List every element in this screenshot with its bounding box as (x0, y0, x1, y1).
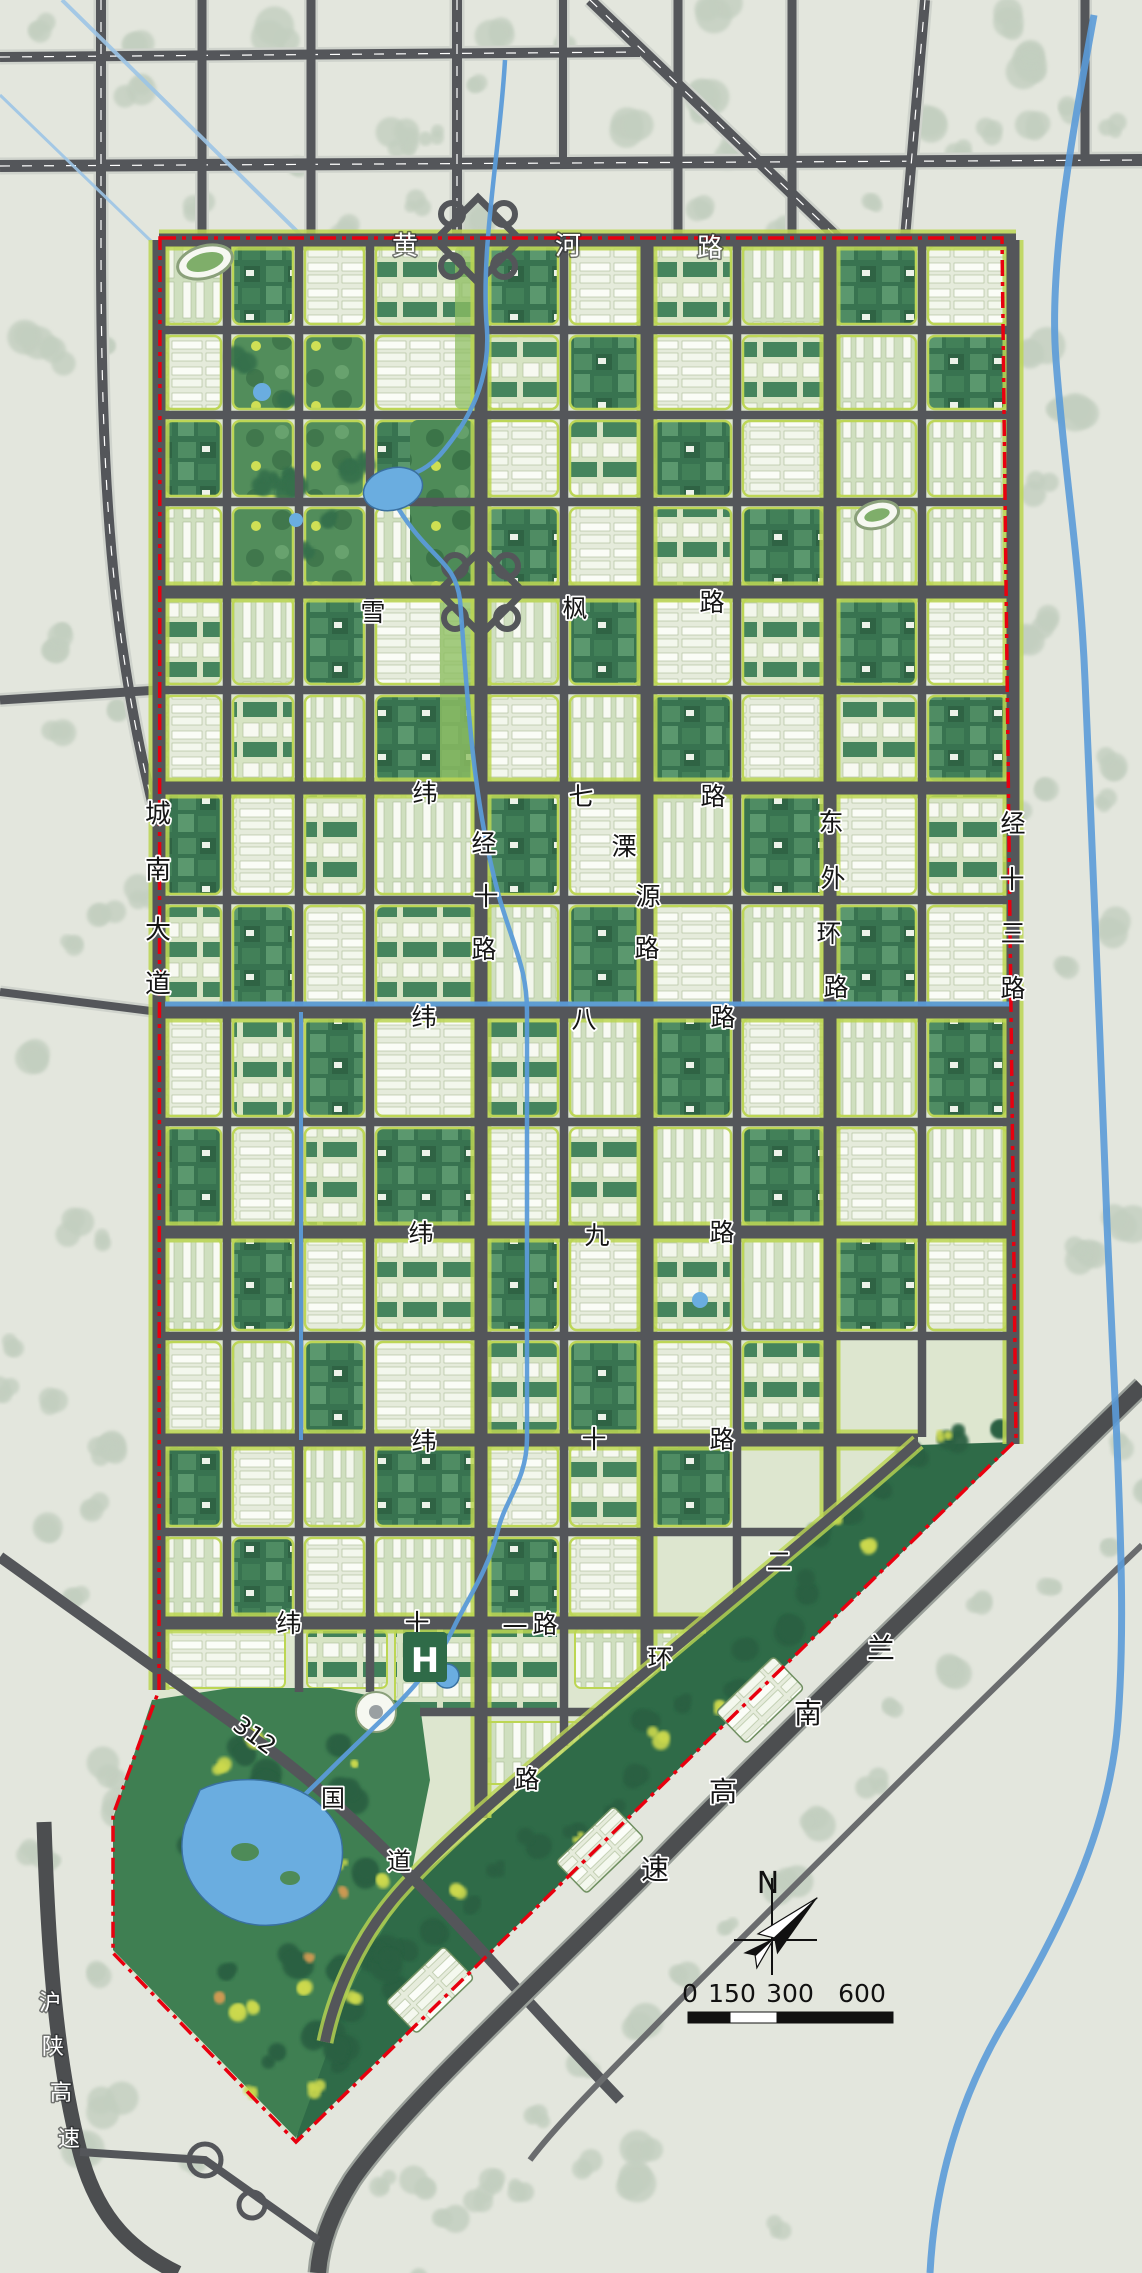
road-label-char: 速 (641, 1853, 669, 1886)
road-label-char: 溧 (611, 832, 636, 861)
svg-text:H: H (411, 1641, 439, 1681)
road-label-char: 城 (145, 799, 171, 829)
road-label-char: 路 (634, 934, 659, 963)
road-label-char: 道 (387, 1848, 411, 1876)
road-label-char: 路 (823, 973, 848, 1002)
road-label-char: 路 (709, 1425, 734, 1454)
road-label-char: 十 (581, 1425, 606, 1454)
road-label-jingshi-road: 经十路 (471, 829, 498, 964)
road-label-char: 国 (321, 1785, 345, 1813)
road-label-char: 高 (709, 1775, 737, 1808)
scale-tick: 300 (766, 1979, 814, 2008)
road-label-char: 纬 (412, 779, 437, 808)
road-label-char: 黄 (392, 231, 418, 261)
road-label-char: 河 (555, 231, 581, 261)
road-label-char: 路 (471, 935, 496, 964)
road-label-char: 十 (999, 865, 1024, 894)
road-label-char: 路 (700, 782, 725, 811)
master-plan-map: 黄河路雪枫路纬七路纬八路纬九路纬十路纬十一路城南大道经十路溧源路东外环路经十三路… (0, 0, 1142, 2273)
road-label-char: 二 (766, 1547, 791, 1576)
road-label-char: 陕 (42, 2035, 64, 2060)
scale-tick: 0 (682, 1979, 698, 2008)
road-label-char: 南 (145, 855, 171, 885)
road-label-char: 经 (1000, 809, 1025, 838)
road-label-char: 东 (818, 808, 843, 837)
north-label: N (757, 1866, 779, 1901)
road-label-char: 八 (571, 1005, 596, 1034)
road-label-char: 路 (697, 233, 723, 263)
scale-tick: 600 (838, 1979, 886, 2008)
road-label-char: 路 (532, 1610, 557, 1639)
road-label-char: 路 (710, 1003, 735, 1032)
road-label-char: 环 (647, 1644, 672, 1673)
road-label-char: 枫 (562, 594, 587, 623)
road-label-char: 纬 (408, 1219, 433, 1248)
road-label-char: 经 (471, 829, 496, 858)
scale-bar: 0150300600 (682, 1979, 893, 2023)
road-label-char: 大 (145, 915, 171, 945)
road-label-char: 源 (635, 882, 660, 911)
road-label-char: 道 (145, 969, 171, 999)
road-label-char: 七 (568, 782, 593, 811)
road-label-char: 外 (820, 864, 845, 893)
road-label-char: 纬 (411, 1003, 436, 1032)
road-label-char: 三 (1000, 919, 1025, 948)
road-label-char: 环 (816, 919, 841, 948)
road-label-char: 路 (699, 588, 724, 617)
map-canvas: 黄河路雪枫路纬七路纬八路纬九路纬十路纬十一路城南大道经十路溧源路东外环路经十三路… (0, 0, 1142, 2273)
road-label-char: 纬 (411, 1427, 436, 1456)
hospital-marker: H (403, 1632, 447, 1682)
scale-tick: 150 (708, 1979, 756, 2008)
road-label-char: 沪 (39, 1991, 61, 2016)
road-label-char: 兰 (867, 1632, 895, 1665)
road-label-char: 纬 (276, 1609, 301, 1638)
road-label-char: 九 (584, 1221, 609, 1250)
road-label-char: 高 (50, 2081, 72, 2106)
road-label-char: 路 (709, 1218, 734, 1247)
road-label-char: 雪 (360, 598, 385, 627)
road-label-char: 南 (794, 1697, 822, 1730)
road-label-char: 十 (473, 882, 498, 911)
road-label-char: 一 (502, 1613, 527, 1642)
road-label-char: 路 (514, 1765, 539, 1794)
road-label-char: 路 (1000, 974, 1025, 1003)
road-label-char: 速 (58, 2127, 80, 2152)
